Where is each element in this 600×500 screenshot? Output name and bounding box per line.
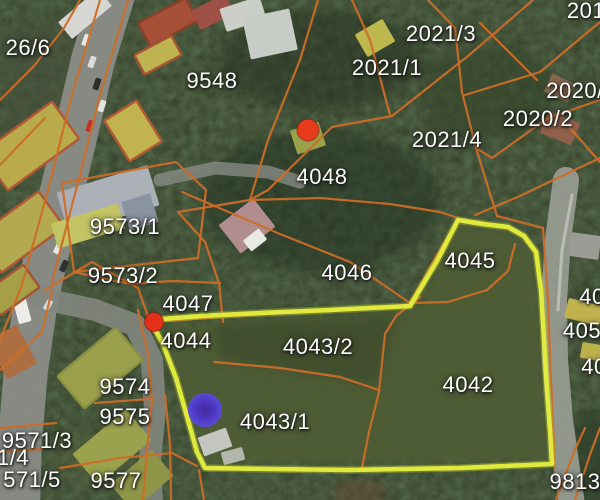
building-roof (568, 232, 600, 260)
cadastral-map-view[interactable]: 26/695482021/32021/12012020/2020/22021/4… (0, 0, 600, 500)
satellite-imagery-layer (0, 0, 600, 500)
red-dot-marker[interactable] (297, 119, 319, 141)
purple-dot-marker[interactable] (188, 393, 222, 427)
red-pin-marker[interactable] (145, 313, 164, 332)
